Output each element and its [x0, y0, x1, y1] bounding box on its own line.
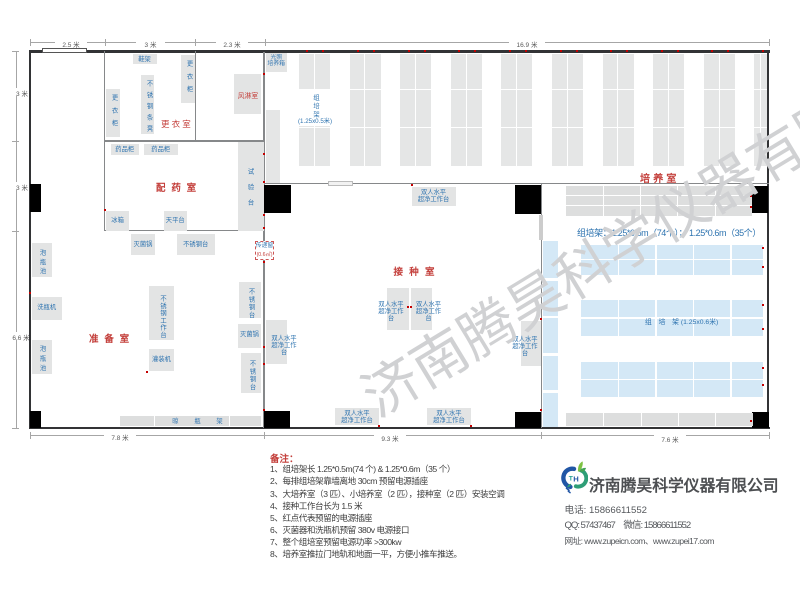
svg-text:H: H	[573, 475, 579, 484]
